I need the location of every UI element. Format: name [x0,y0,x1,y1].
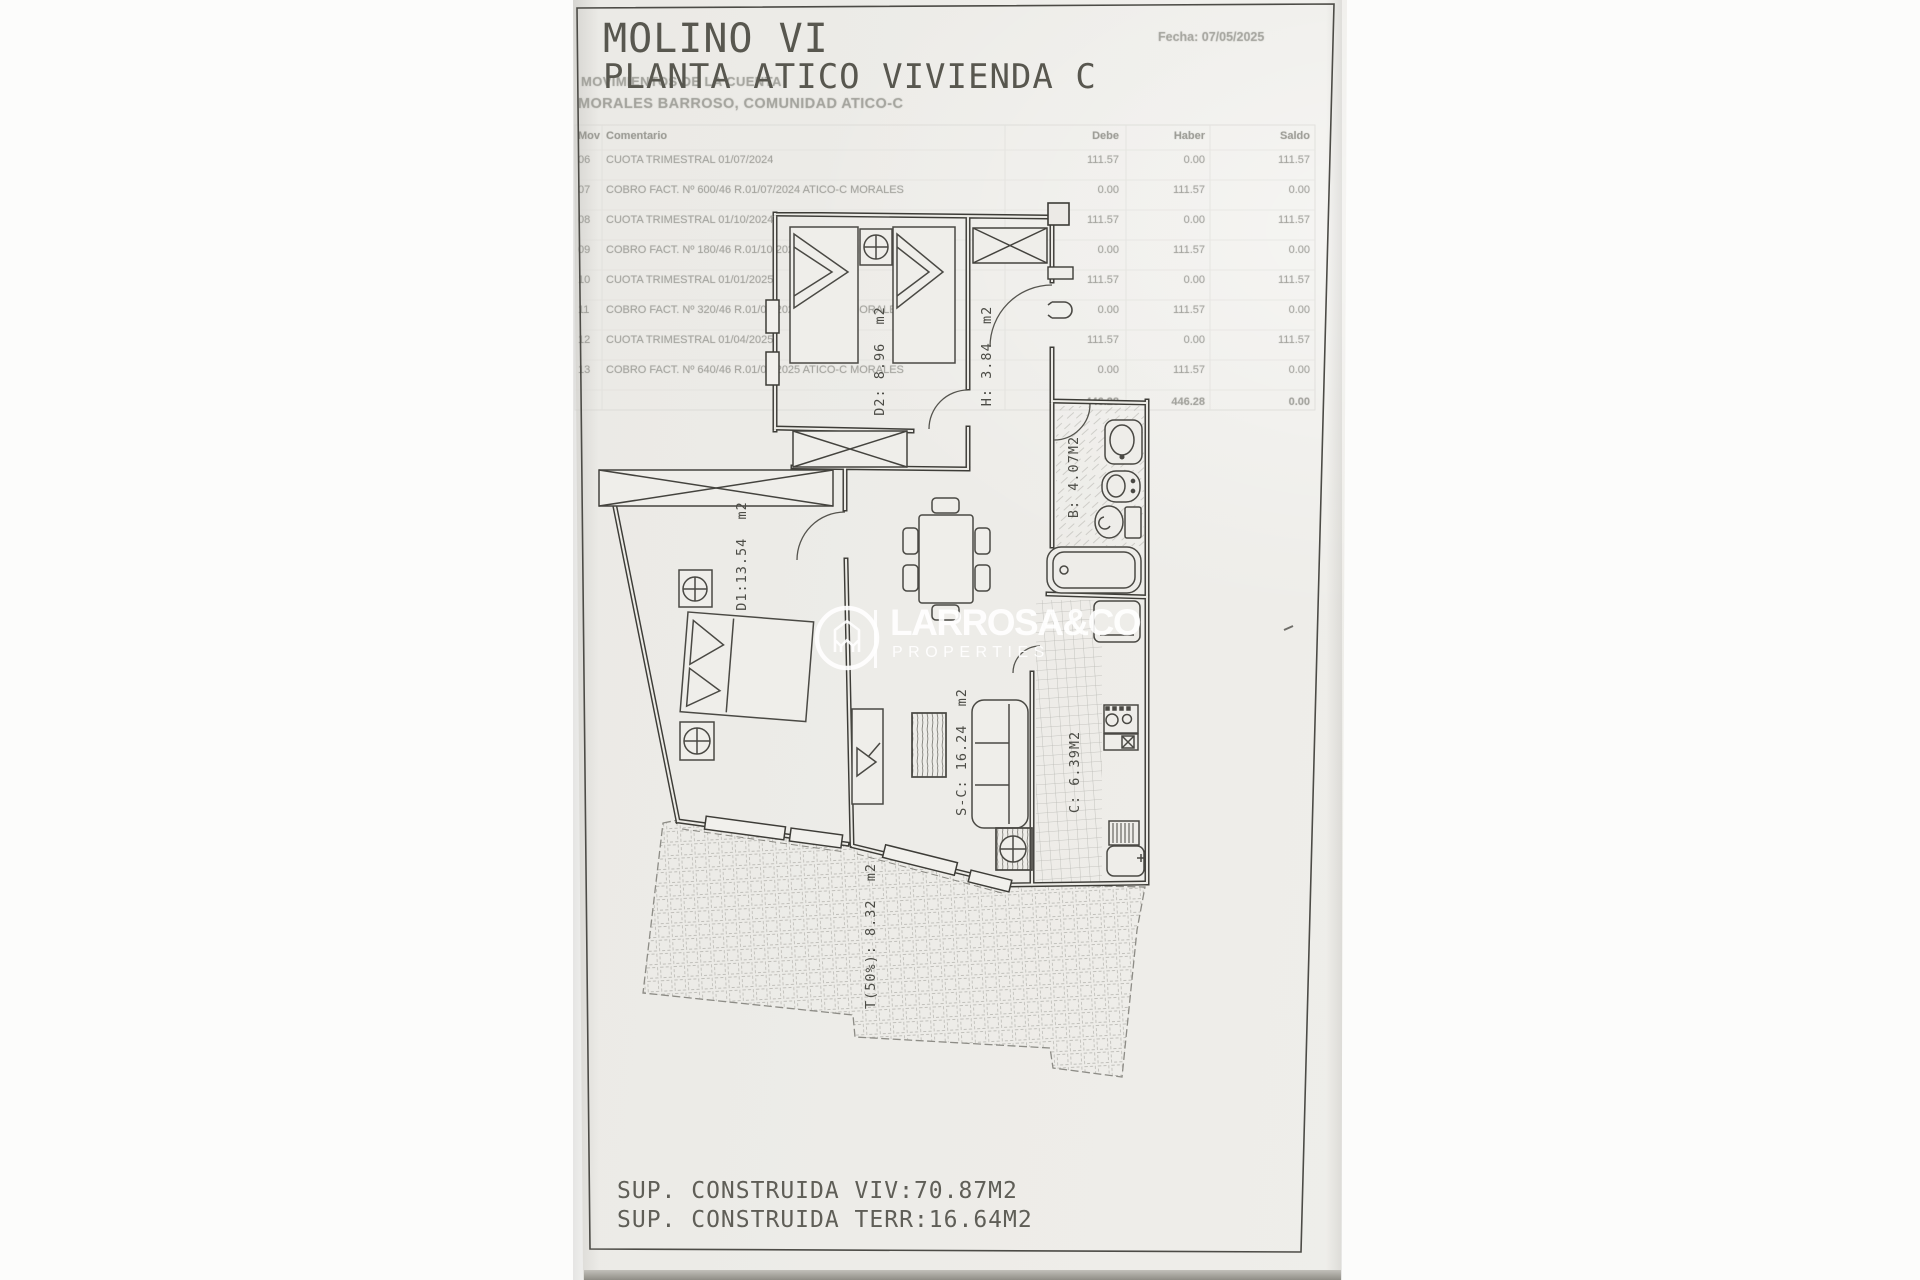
scanned-floorplan-page: MOVIMIENTOS DE LA CUENTA MORALES BARROSO… [0,0,1920,1280]
room-label-d2: D2: 8.96 m2 [872,306,888,416]
watermark-tagline: PROPERTIES [892,644,1050,662]
room-label-sc: S-C: 16.24 m2 [954,688,970,816]
watermark-brand: LARROSA&CO [890,602,1140,644]
living-room-furniture [852,700,1032,870]
watermark: LARROSA&CO PROPERTIES [808,600,1128,680]
plan-subtitle: PLANTA ATICO VIVIENDA C [603,57,1097,97]
flue-block [1048,203,1069,225]
room-label-b: B: 4.07M2 [1066,436,1082,518]
plan-title: MOLINO VI [603,16,829,62]
watermark-divider [874,610,877,668]
dust-mark [1284,626,1293,630]
wall-stub [1048,267,1073,279]
room-label-d1: D1:13.54 m2 [734,501,750,611]
room-label-c: C: 6.39M2 [1067,731,1083,813]
built-area-terrace: SUP. CONSTRUIDA TERR:16.64M2 [617,1207,1033,1233]
duct-symbol [1048,302,1072,318]
built-area-dwelling: SUP. CONSTRUIDA VIV:70.87M2 [617,1178,1018,1204]
room-label-h: H: 3.84 m2 [979,306,995,406]
room-label-t: T(50%): 8.32 m2 [863,863,879,1009]
